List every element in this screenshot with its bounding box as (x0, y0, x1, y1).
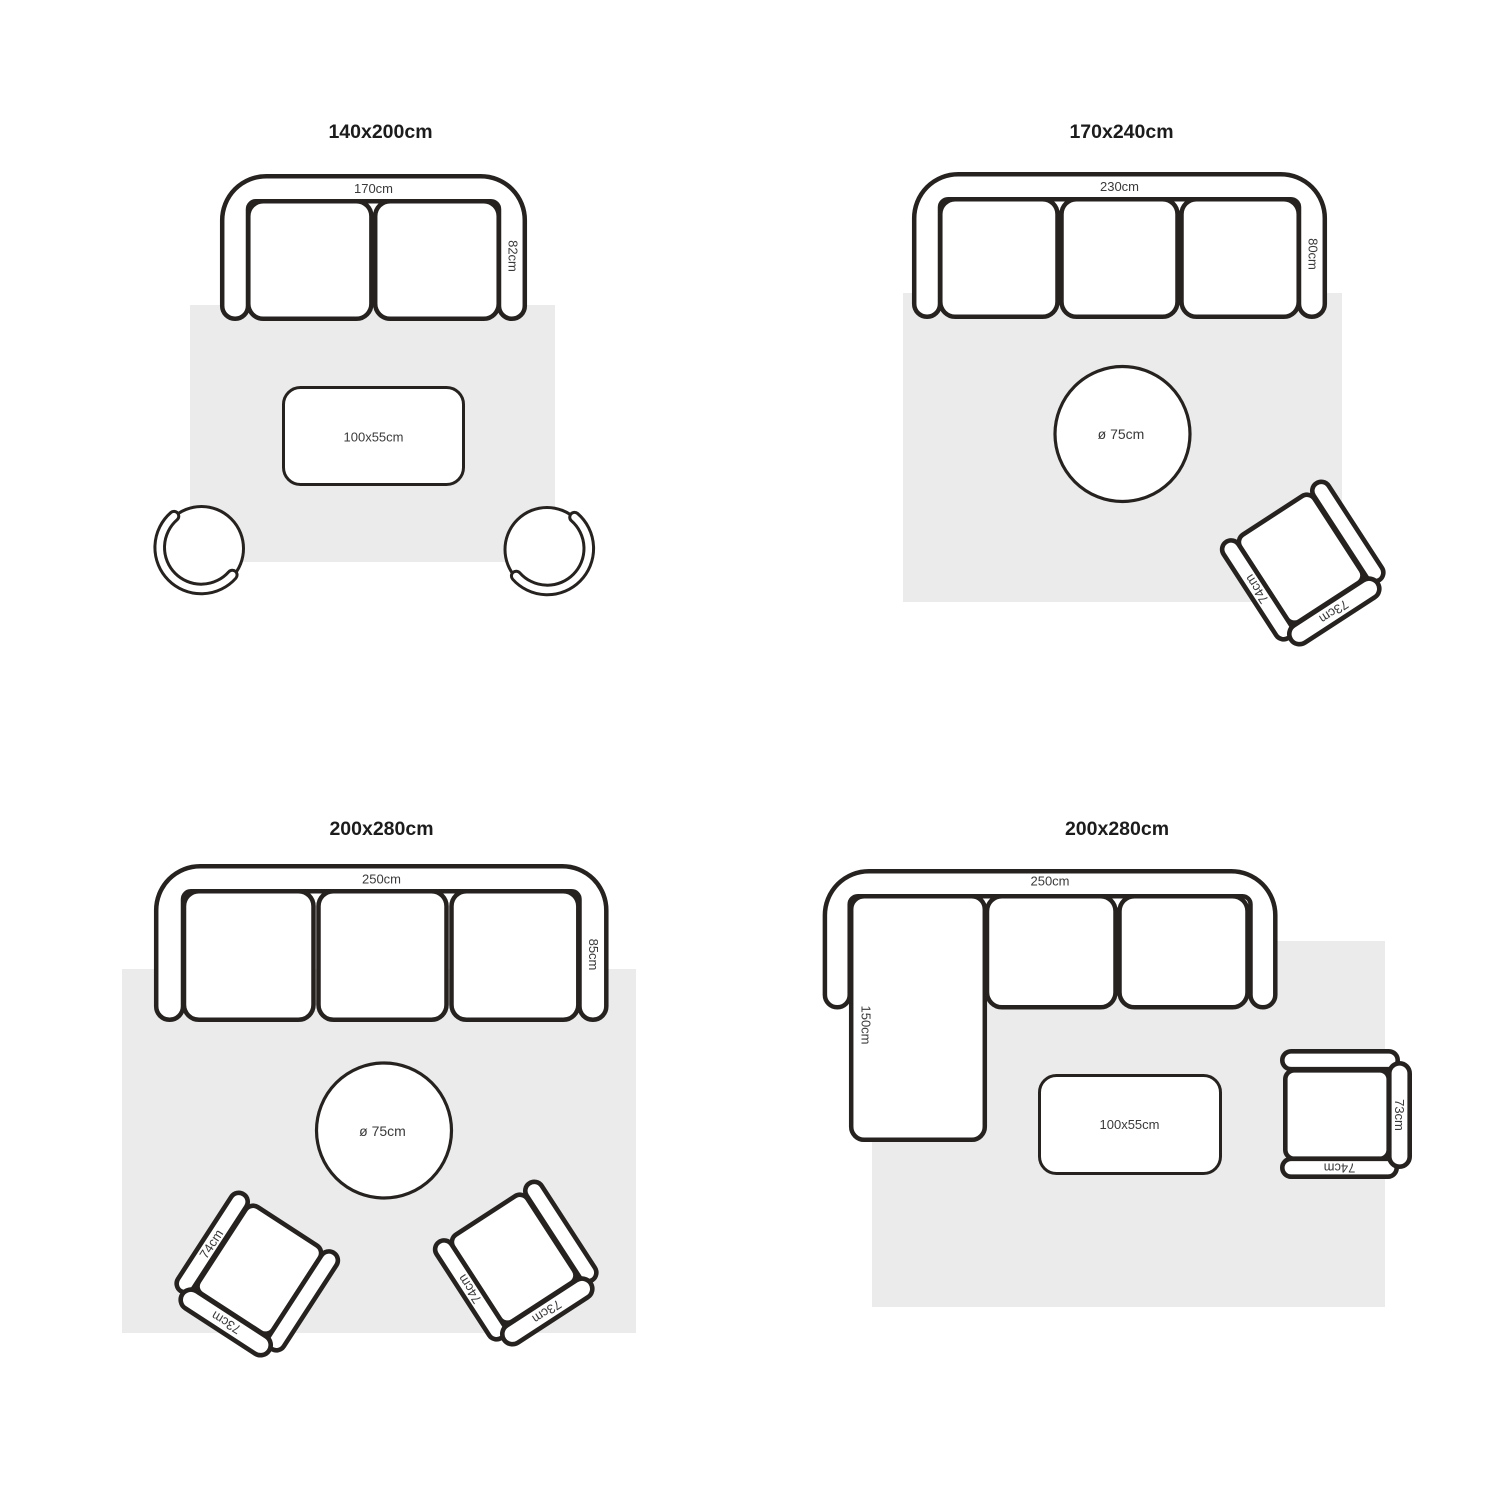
svg-text:100x55cm: 100x55cm (344, 430, 404, 445)
svg-text:170x240cm: 170x240cm (1069, 121, 1173, 143)
svg-text:140x200cm: 140x200cm (328, 121, 432, 143)
svg-text:100x55cm: 100x55cm (1100, 1117, 1160, 1132)
svg-text:230cm: 230cm (1100, 179, 1139, 194)
svg-text:200x280cm: 200x280cm (329, 818, 433, 840)
svg-text:74cm: 74cm (1324, 1161, 1356, 1176)
svg-text:200x280cm: 200x280cm (1065, 818, 1169, 840)
svg-text:170cm: 170cm (354, 181, 393, 196)
svg-text:ø 75cm: ø 75cm (359, 1123, 406, 1139)
svg-text:250cm: 250cm (1030, 874, 1069, 889)
svg-text:250cm: 250cm (362, 872, 401, 887)
svg-text:73cm: 73cm (1392, 1099, 1407, 1131)
svg-text:80cm: 80cm (1306, 238, 1321, 270)
svg-text:85cm: 85cm (586, 939, 601, 971)
svg-text:150cm: 150cm (859, 1005, 874, 1044)
svg-text:ø 75cm: ø 75cm (1098, 426, 1145, 442)
svg-text:82cm: 82cm (506, 240, 521, 272)
